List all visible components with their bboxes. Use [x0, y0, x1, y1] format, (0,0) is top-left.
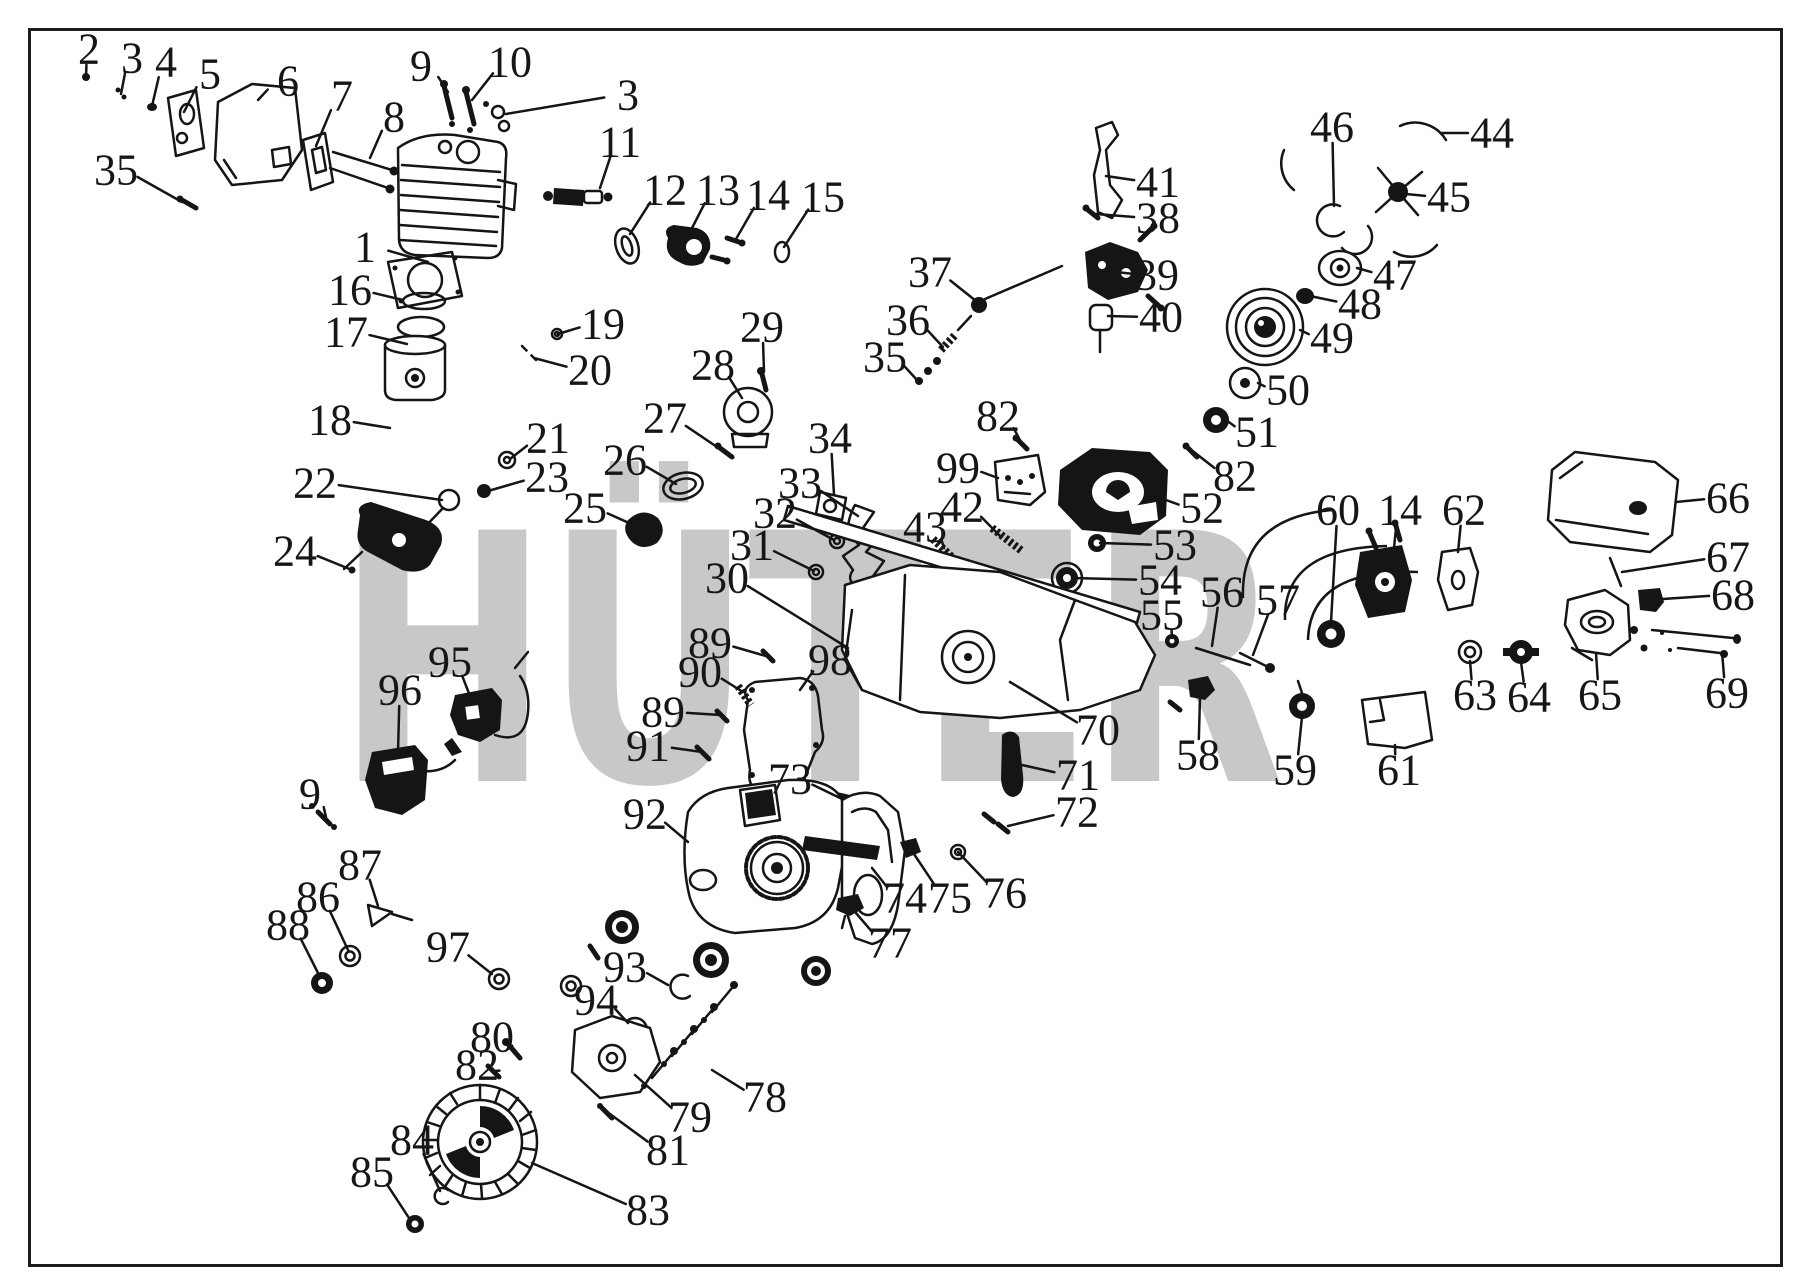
callout-92: 92 [623, 790, 667, 839]
callout-61: 61 [1377, 746, 1421, 795]
callout-14: 14 [1378, 486, 1422, 535]
leader-line-23 [488, 481, 524, 491]
callout-78: 78 [743, 1073, 787, 1122]
callout-37: 37 [908, 248, 952, 297]
cylinder-cluster [398, 135, 613, 258]
leader-line-16 [374, 293, 403, 300]
callout-74: 74 [883, 874, 927, 923]
callout-73: 73 [768, 755, 812, 804]
callout-45: 45 [1427, 173, 1471, 222]
callout-25: 25 [563, 484, 607, 533]
callout-28: 28 [691, 341, 735, 390]
callout-20: 20 [568, 346, 612, 395]
callout-51: 51 [1235, 408, 1279, 457]
callout-14: 14 [746, 171, 790, 220]
callout-72: 72 [1055, 788, 1099, 837]
leader-line-8 [370, 131, 382, 158]
leader-line-18 [354, 422, 390, 428]
callout-34: 34 [808, 414, 852, 463]
callout-19: 19 [581, 300, 625, 349]
callout-13: 13 [696, 166, 740, 215]
callout-97: 97 [426, 923, 470, 972]
callout-55: 55 [1140, 591, 1184, 640]
callout-9: 9 [299, 770, 321, 819]
leader-line-24 [318, 556, 352, 570]
callout-29: 29 [740, 303, 784, 352]
callout-85: 85 [350, 1148, 394, 1197]
callout-87: 87 [338, 841, 382, 890]
callout-4: 4 [155, 38, 177, 87]
callout-11: 11 [599, 118, 641, 167]
callout-18: 18 [308, 396, 352, 445]
callout-83: 83 [626, 1186, 670, 1235]
leader-line-40 [1108, 316, 1137, 317]
callout-10: 10 [488, 38, 532, 87]
callout-2: 2 [78, 25, 100, 74]
callout-63: 63 [1453, 671, 1497, 720]
callout-99: 99 [936, 444, 980, 493]
callout-17: 17 [324, 308, 368, 357]
callout-56: 56 [1200, 568, 1244, 617]
callout-64: 64 [1507, 673, 1551, 722]
callout-22: 22 [293, 459, 337, 508]
callout-82: 82 [1213, 452, 1257, 501]
callout-94: 94 [574, 976, 618, 1025]
callout-88: 88 [266, 901, 310, 950]
leader-line-52 [1166, 500, 1179, 505]
leader-line-3 [506, 97, 604, 114]
leader-line-81 [610, 1114, 648, 1142]
callout-76: 76 [983, 869, 1027, 918]
callout-98: 98 [808, 636, 852, 685]
callout-65: 65 [1578, 671, 1622, 720]
cylinder-screws [440, 80, 509, 133]
callout-84: 84 [390, 1116, 434, 1165]
callout-8: 8 [383, 93, 405, 142]
leader-line-67 [1622, 559, 1704, 572]
callout-70: 70 [1076, 706, 1120, 755]
leader-line-97 [468, 955, 492, 974]
leader-line-60 [1331, 526, 1337, 622]
callout-46: 46 [1310, 103, 1354, 152]
leader-line-53 [1100, 543, 1151, 545]
callout-26: 26 [603, 436, 647, 485]
callout-60: 60 [1316, 486, 1360, 535]
callout-96: 96 [378, 666, 422, 715]
callout-82: 82 [976, 392, 1020, 441]
callout-15: 15 [801, 173, 845, 222]
leader-line-31 [774, 551, 814, 571]
leader-line-46 [1333, 143, 1334, 206]
callout-41: 41 [1136, 158, 1180, 207]
callout-44: 44 [1470, 109, 1514, 158]
parts-artwork: 1233456789910111213141415161718192021222… [0, 0, 1809, 1283]
leader-line-54 [1072, 578, 1136, 580]
leader-line-93 [647, 973, 668, 985]
callout-66: 66 [1706, 474, 1750, 523]
leader-line-38 [1096, 214, 1134, 217]
callout-68: 68 [1711, 571, 1755, 620]
callout-81: 81 [646, 1126, 690, 1175]
diagram-stage: HÜTER [0, 0, 1809, 1283]
callout-49: 49 [1310, 314, 1354, 363]
leader-line-66 [1676, 499, 1704, 502]
callout-12: 12 [643, 166, 687, 215]
callout-77: 77 [868, 919, 912, 968]
callout-36: 36 [886, 296, 930, 345]
callout-58: 58 [1176, 731, 1220, 780]
callout-62: 62 [1442, 486, 1486, 535]
callout-3: 3 [121, 34, 143, 83]
leader-line-7 [316, 110, 331, 146]
callout-24: 24 [273, 527, 317, 576]
callout-9: 9 [410, 42, 432, 91]
callout-43: 43 [903, 503, 947, 552]
callout-3: 3 [617, 71, 639, 120]
callout-82: 82 [455, 1041, 499, 1090]
callout-69: 69 [1705, 669, 1749, 718]
callout-95: 95 [428, 638, 472, 687]
callout-1: 1 [354, 223, 376, 272]
leader-line-45 [1406, 194, 1425, 196]
leader-line-27 [686, 426, 723, 451]
callout-27: 27 [643, 394, 687, 443]
callout-5: 5 [199, 50, 221, 99]
callout-91: 91 [626, 722, 670, 771]
leader-line-22 [339, 485, 442, 500]
callout-6: 6 [277, 57, 299, 106]
callout-7: 7 [331, 72, 353, 121]
callout-75: 75 [928, 874, 972, 923]
callout-59: 59 [1273, 746, 1317, 795]
leader-line-37 [950, 281, 976, 301]
leader-line-72 [1008, 815, 1053, 826]
leader-line-83 [532, 1163, 626, 1204]
callout-33: 33 [778, 459, 822, 508]
leader-line-48 [1310, 296, 1336, 301]
leader-line-20 [534, 358, 567, 367]
callout-40: 40 [1139, 293, 1183, 342]
callout-90: 90 [678, 648, 722, 697]
leader-line-78 [712, 1070, 744, 1090]
leader-line-35 [138, 177, 182, 202]
callout-57: 57 [1256, 576, 1300, 625]
callout-35: 35 [94, 146, 138, 195]
leader-line-6 [258, 90, 268, 100]
leader-line-82 [1194, 452, 1214, 468]
leader-line-68 [1663, 596, 1709, 599]
gasket-cluster [611, 225, 789, 267]
leader-line-71 [1022, 765, 1054, 772]
